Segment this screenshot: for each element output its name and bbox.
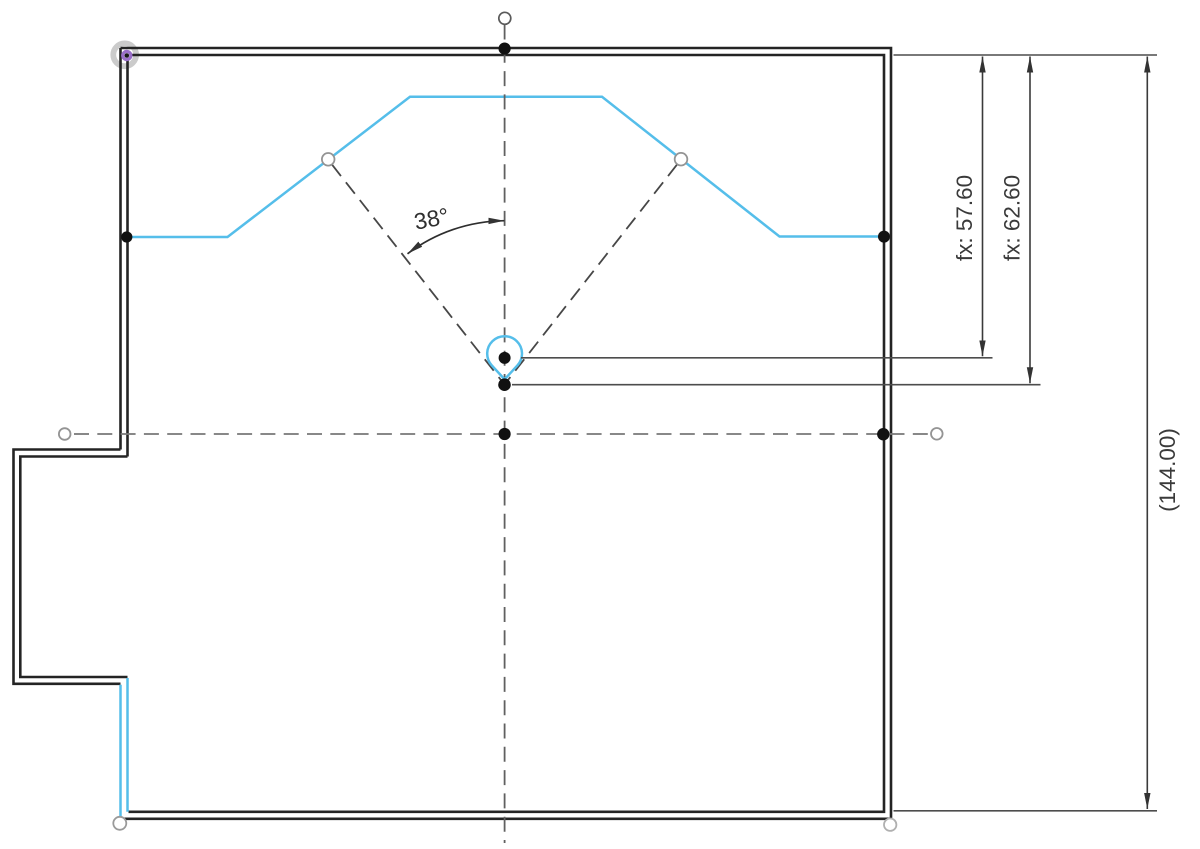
svg-text:(144.00): (144.00)	[1155, 428, 1180, 512]
svg-text:fx: 62.60: fx: 62.60	[1000, 175, 1025, 261]
svg-text:fx: 57.60: fx: 57.60	[952, 175, 977, 261]
